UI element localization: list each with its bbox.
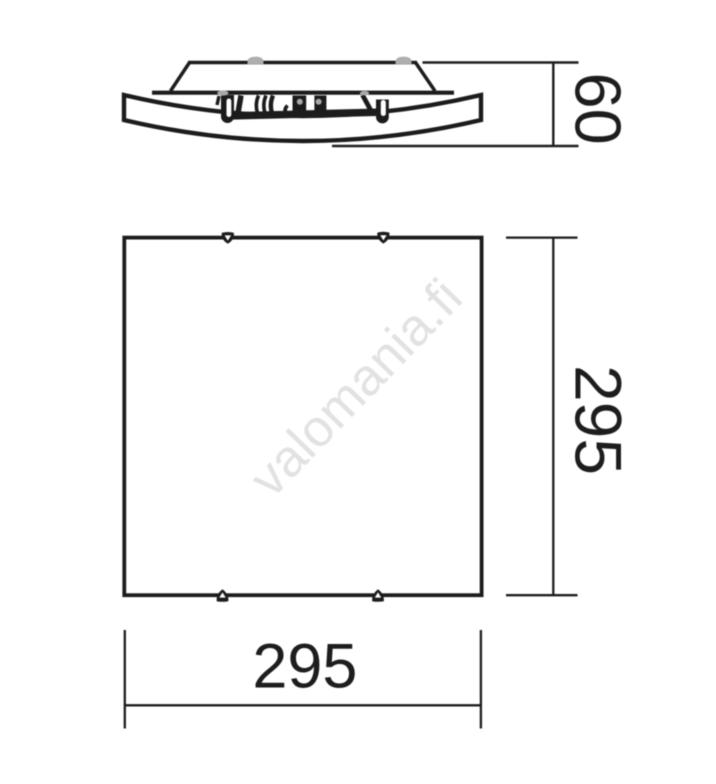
- svg-text:295: 295: [252, 631, 357, 701]
- svg-text:60: 60: [562, 72, 635, 144]
- svg-text:295: 295: [562, 365, 636, 475]
